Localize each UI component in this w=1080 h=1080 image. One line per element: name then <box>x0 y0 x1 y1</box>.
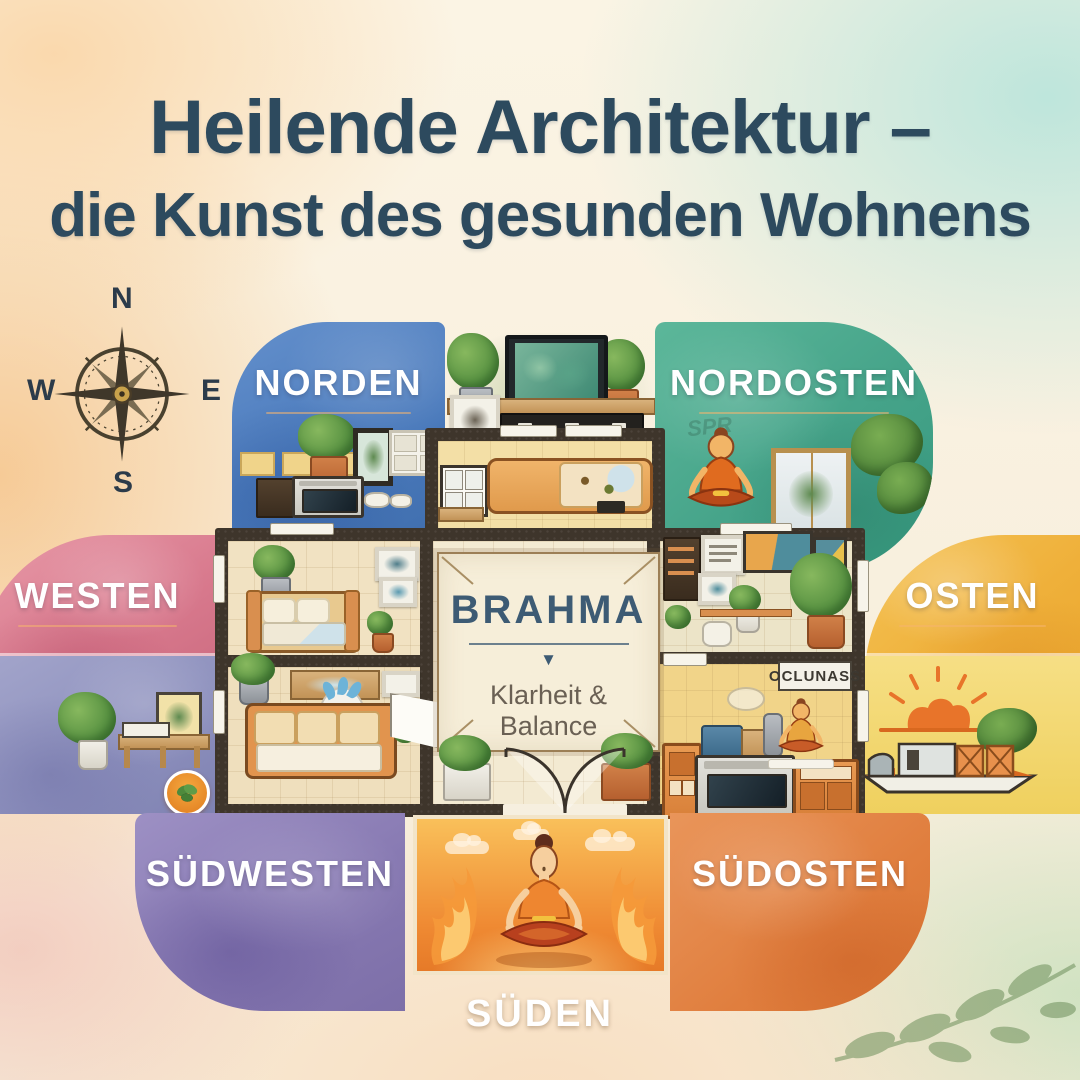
zone-westen-rule <box>18 625 178 627</box>
plant-foliage-icon <box>253 545 295 581</box>
page-subtitle: die Kunst des gesunden Wohnens <box>0 180 1080 251</box>
kitchen-plaque: OCLUNASS <box>778 661 852 691</box>
rack-icon <box>663 537 701 601</box>
zone-nordosten-label: NORDOSTEN <box>655 362 933 404</box>
window-slat-icon <box>565 425 622 437</box>
pot-icon <box>701 725 743 759</box>
tv-icon <box>505 335 608 406</box>
bench-leg-icon <box>160 746 166 768</box>
plant-foliage-icon <box>665 605 691 629</box>
wall-art-icon <box>375 547 419 581</box>
bush-icon <box>877 462 933 514</box>
steam-sketch-icon <box>727 687 765 711</box>
remote-icon <box>597 501 625 513</box>
plant-foliage-icon <box>367 611 393 635</box>
flames-icon <box>599 853 668 973</box>
brahma-divider <box>469 643 629 645</box>
wall-art-icon <box>379 577 417 607</box>
flames-icon <box>419 853 489 973</box>
kitchen-plaque-text: OCLUNASS <box>769 668 861 685</box>
plant-pot-icon <box>78 740 108 770</box>
zone-west-lower <box>0 656 215 814</box>
zone-suedwesten-label: SÜDWESTEN <box>135 853 405 895</box>
zone-suedosten-label: SÜDOSTEN <box>670 853 930 895</box>
bench-leg-icon <box>124 746 130 768</box>
plant-foliage-icon <box>790 553 852 617</box>
zone-osten-rule <box>899 625 1045 627</box>
zone-sueden-label: SÜDEN <box>0 993 1080 1036</box>
compass-north-label: N <box>111 282 133 316</box>
zone-westen-label: WESTEN <box>0 575 215 617</box>
bench-leg-icon <box>194 746 200 768</box>
floor-plan: OCLUNASS <box>215 425 865 817</box>
window-slat-icon <box>857 560 869 612</box>
zone-east-lower <box>865 656 1080 814</box>
door-gap-icon <box>663 653 707 666</box>
meditating-woman-icon <box>484 831 604 973</box>
brahma-corner-lines <box>439 554 658 750</box>
window-slat-icon <box>270 523 334 535</box>
compass-rose-icon <box>47 319 197 469</box>
zone-norden-rule <box>266 412 411 414</box>
south-fire-panel <box>413 815 668 975</box>
plant-foliage-icon <box>58 692 116 744</box>
window-shelf-icon <box>438 507 484 522</box>
plant-pot-icon <box>807 615 845 649</box>
brahma-panel: BRAHMA ▼ Klarheit & Balance <box>437 552 660 752</box>
compass-rose: N W E S <box>25 282 225 512</box>
zone-osten-label: OSTEN <box>865 575 1080 617</box>
plant-pot-icon <box>372 633 394 653</box>
compass-south-label: S <box>113 466 133 500</box>
towel-rail-icon <box>700 609 792 617</box>
compass-east-label: E <box>201 374 221 408</box>
plant-foliage-icon <box>439 735 491 771</box>
leaf-badge-icon <box>164 770 210 814</box>
sofa-icon <box>245 703 397 779</box>
towel-icon <box>702 621 732 647</box>
plant-foliage-icon <box>447 333 499 389</box>
zone-norden-label: NORDEN <box>232 362 445 404</box>
framed-sign-icon <box>701 535 745 575</box>
bed-icon <box>247 591 359 653</box>
window-slat-icon <box>857 690 869 742</box>
infographic-canvas: Heilende Architektur – die Kunst des ges… <box>0 0 1080 1080</box>
boat-icon <box>865 732 1039 796</box>
page-title: Heilende Architektur – <box>0 84 1080 171</box>
zone-suedwesten: SÜDWESTEN <box>135 813 405 1011</box>
plant-foliage-icon <box>231 653 275 685</box>
wall-art-icon <box>382 671 420 697</box>
window-slat-icon <box>213 555 225 603</box>
french-doors-icon <box>500 747 630 817</box>
bench-tray-icon <box>122 722 170 738</box>
window-slat-icon <box>500 425 557 437</box>
meditating-person-icon <box>773 697 829 763</box>
window-slat-icon <box>213 690 225 734</box>
